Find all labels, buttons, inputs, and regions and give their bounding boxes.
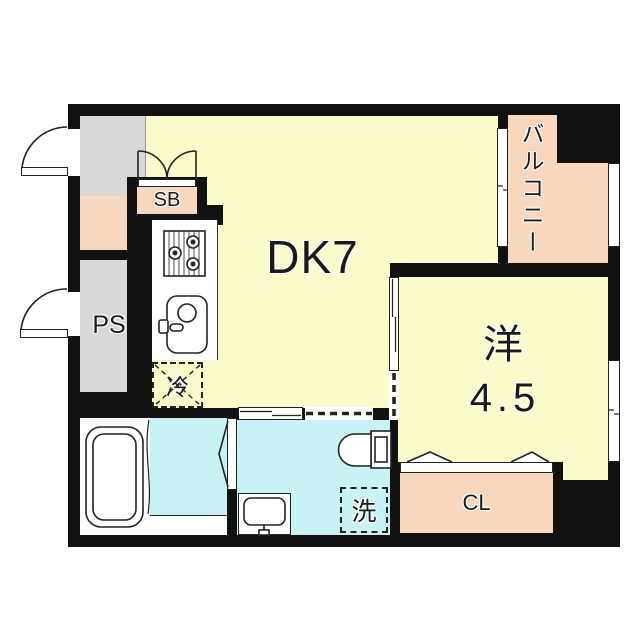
room-bathroom [150,418,227,515]
floor-plan-page: SB 冷 CL 洗 [0,0,640,640]
window-western-room [608,360,620,462]
sliding-door-pocket-western [389,371,399,420]
window-dk-balcony [497,128,508,247]
entrance-door-leaf [21,167,68,176]
balcony-railing [608,163,620,247]
dk-room-label: DK7 [266,230,358,284]
room-western-corner [563,462,608,480]
entrance-door-opening [68,129,80,176]
western-room-area-box: 4.5 [450,374,560,422]
balcony-label: バルコニー [514,122,548,257]
sliding-door-dk-western [389,277,399,371]
hallway [80,196,127,250]
opening-dk-laundry [305,407,373,420]
western-room-label: 洋 [483,312,523,370]
ps-door-opening [68,292,80,336]
ps-label-box: PS [80,300,138,350]
balcony-label-box: バルコニー [516,122,546,257]
ps-door-arc-icon [21,289,67,330]
kitchen-counter [152,220,218,360]
ps-label: PS [92,311,125,340]
wall-below-ps [80,392,152,418]
bathroom-folding-door [227,418,237,490]
closet-folding-doors [400,462,553,473]
laundry-space: 洗 [340,487,388,533]
wall-dk-western-top [390,263,498,277]
refrigerator-label: 冷 [166,368,189,402]
entrance-door-arc-icon [22,127,67,168]
shoe-box-label: SB [154,189,181,212]
western-room-area: 4.5 [470,376,541,421]
room-shoe-box: SB [137,187,197,214]
room-closet: CL [400,473,553,533]
western-room-label-box: 洋 [470,318,536,364]
bathtub-deck [80,418,150,535]
ps-door-leaf [20,329,68,338]
closet-label: CL [462,490,490,516]
bathroom-ledge [150,515,227,535]
vanity-unit [238,493,291,535]
shoe-box-door [138,179,196,187]
refrigerator-space: 冷 [152,362,203,408]
sliding-door-dk-washroom [238,407,303,420]
entrance-area [80,116,146,177]
dk-room-label-box: DK7 [240,228,385,286]
entrance-area-lower [80,177,127,196]
laundry-label: 洗 [351,492,376,528]
